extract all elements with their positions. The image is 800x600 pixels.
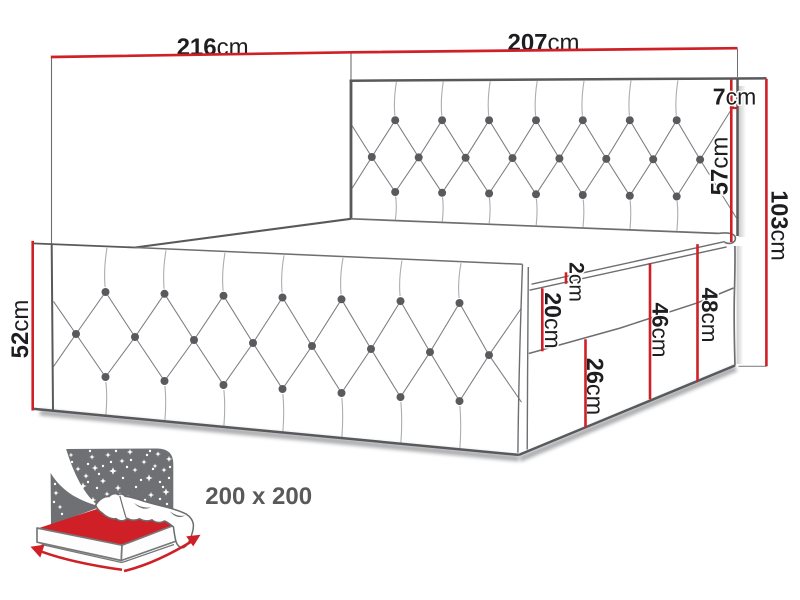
svg-text:7cm: 7cm	[713, 84, 756, 110]
svg-text:103cm: 103cm	[767, 190, 793, 261]
svg-text:2cm: 2cm	[564, 262, 587, 302]
svg-text:52cm: 52cm	[7, 300, 34, 359]
svg-text:200 x 200: 200 x 200	[205, 483, 312, 510]
svg-text:20cm: 20cm	[540, 292, 566, 348]
svg-text:216cm: 216cm	[177, 34, 249, 61]
svg-text:207cm: 207cm	[507, 30, 579, 57]
svg-text:48cm: 48cm	[697, 287, 722, 342]
svg-text:57cm: 57cm	[707, 137, 734, 196]
